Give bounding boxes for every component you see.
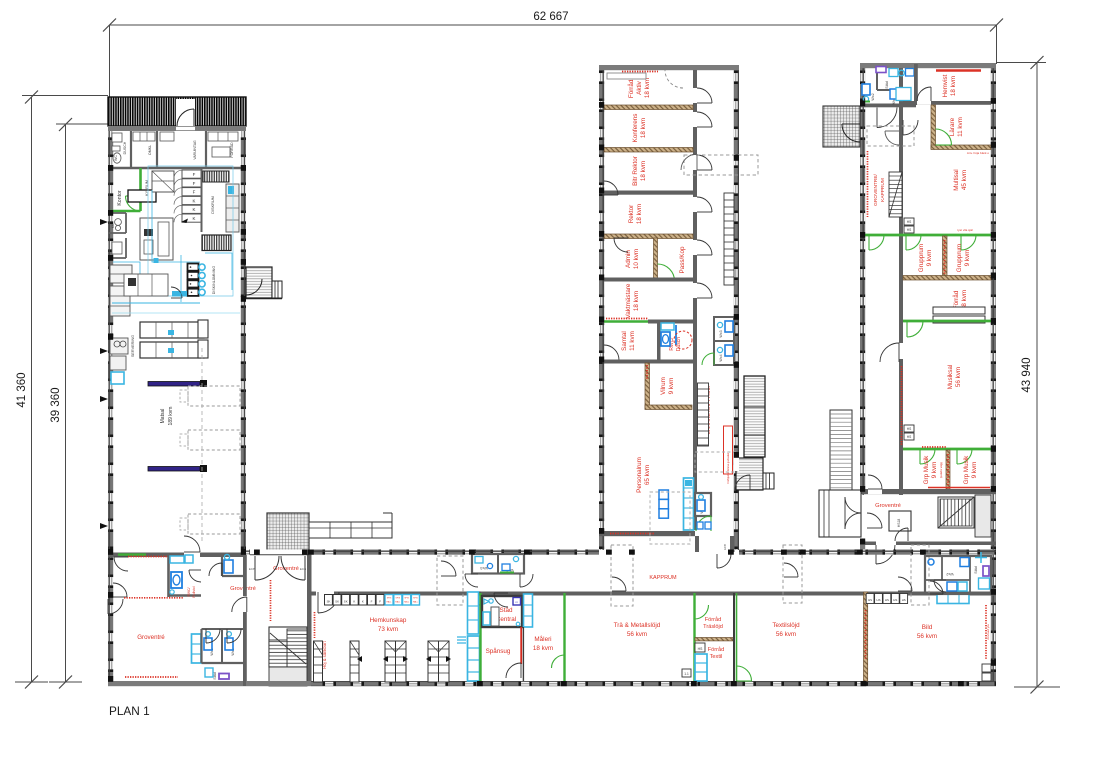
svg-text:Textil: Textil bbox=[710, 654, 723, 660]
svg-text:Grupprum: Grupprum bbox=[956, 244, 963, 272]
svg-text:Wc3: Wc3 bbox=[480, 566, 487, 570]
svg-text:Bild: Bild bbox=[922, 624, 933, 631]
svg-text:Förråd: Förråd bbox=[952, 290, 960, 309]
svg-text:KYLRUM: KYLRUM bbox=[145, 180, 149, 196]
svg-text:HALL: HALL bbox=[404, 601, 410, 604]
svg-text:F: F bbox=[193, 190, 196, 195]
svg-text:Grupprum: Grupprum bbox=[918, 244, 925, 272]
svg-text:Måleri: Måleri bbox=[534, 635, 551, 643]
svg-text:1.1: 1.1 bbox=[684, 672, 689, 676]
svg-text:PLAN 1: PLAN 1 bbox=[109, 704, 150, 718]
svg-text:189 kvm: 189 kvm bbox=[168, 407, 174, 426]
svg-text:9 kvm: 9 kvm bbox=[964, 250, 971, 267]
svg-text:Konferens: Konferens bbox=[632, 114, 639, 143]
svg-text:Vaktmästare: Vaktmästare bbox=[625, 283, 632, 318]
svg-text:Wc2: Wc2 bbox=[946, 572, 953, 576]
svg-text:18 kvm: 18 kvm bbox=[633, 291, 640, 311]
svg-text:39 360: 39 360 bbox=[50, 387, 62, 422]
svg-text:GROVENTRE/: GROVENTRE/ bbox=[873, 173, 879, 205]
svg-text:Aktiv: Aktiv bbox=[636, 80, 643, 94]
svg-text:Samtal: Samtal bbox=[621, 331, 628, 351]
svg-text:HS: HS bbox=[907, 220, 911, 224]
svg-text:KAPPRUM: KAPPRUM bbox=[649, 575, 677, 581]
svg-text:18 kvm: 18 kvm bbox=[950, 76, 957, 96]
svg-text:18 kvm: 18 kvm bbox=[636, 204, 643, 224]
svg-text:HS: HS bbox=[907, 427, 911, 431]
svg-text:OMKL: OMKL bbox=[148, 145, 152, 155]
svg-text:Wc4: Wc4 bbox=[719, 354, 723, 361]
svg-text:K: K bbox=[193, 198, 196, 203]
svg-text:SK: SK bbox=[344, 600, 348, 604]
svg-text:Lärare: Lärare bbox=[949, 117, 956, 136]
svg-text:F: F bbox=[193, 181, 196, 186]
svg-text:Groventré: Groventré bbox=[875, 503, 901, 509]
svg-text:Dusch: Dusch bbox=[676, 337, 682, 351]
svg-text:65 kvm: 65 kvm bbox=[644, 465, 651, 485]
svg-text:Hemvist: Hemvist bbox=[942, 74, 949, 97]
svg-text:F: F bbox=[193, 172, 196, 177]
svg-text:Admin: Admin bbox=[625, 250, 632, 268]
svg-text:HALL: HALL bbox=[395, 601, 401, 604]
svg-text:HS: HS bbox=[868, 598, 872, 602]
svg-text:41 360: 41 360 bbox=[16, 372, 28, 407]
svg-text:56 kvm: 56 kvm bbox=[955, 367, 962, 387]
svg-text:K: K bbox=[353, 600, 355, 604]
svg-text:18 kvm: 18 kvm bbox=[640, 118, 647, 138]
svg-text:Musiksal: Musiksal bbox=[947, 365, 954, 390]
svg-text:45 kvm: 45 kvm bbox=[961, 170, 968, 190]
svg-text:18 kvm: 18 kvm bbox=[640, 161, 647, 181]
svg-text:VARUINTAG: VARUINTAG bbox=[193, 140, 197, 160]
svg-text:HALL: HALL bbox=[386, 601, 392, 604]
svg-text:WC: WC bbox=[114, 155, 118, 161]
svg-text:18 kvm: 18 kvm bbox=[533, 645, 553, 652]
svg-text:Groventré: Groventré bbox=[137, 634, 165, 641]
svg-text:SPIS: SPIS bbox=[404, 598, 409, 600]
svg-text:9 kvm: 9 kvm bbox=[971, 462, 978, 479]
svg-text:SERVERING: SERVERING bbox=[131, 335, 135, 357]
svg-text:Spånsug: Spånsug bbox=[486, 647, 511, 655]
svg-text:Förråd/: Förråd/ bbox=[627, 78, 635, 99]
svg-text:HS: HS bbox=[698, 647, 703, 651]
svg-text:ECB: ECB bbox=[249, 567, 255, 571]
svg-text:DUSCH: DUSCH bbox=[123, 141, 127, 154]
svg-text:ECB: ECB bbox=[300, 567, 306, 571]
svg-text:43 940: 43 940 bbox=[1021, 357, 1033, 392]
svg-text:HS: HS bbox=[902, 598, 906, 602]
svg-text:Städ: Städ bbox=[885, 81, 889, 88]
svg-text:Pass/Kop: Pass/Kop bbox=[679, 246, 686, 273]
svg-text:Anv. höja bänk o: Anv. höja bänk o bbox=[967, 151, 989, 155]
svg-text:SPIS: SPIS bbox=[387, 598, 392, 600]
svg-text:10 kvm: 10 kvm bbox=[633, 249, 640, 269]
svg-text:ECB: ECB bbox=[723, 544, 727, 550]
svg-text:DISKRUM: DISKRUM bbox=[211, 196, 215, 214]
svg-text:K: K bbox=[193, 207, 196, 212]
svg-text:Hemkunskap: Hemkunskap bbox=[370, 617, 407, 624]
svg-text:HS: HS bbox=[876, 598, 880, 602]
svg-text:Wc2: Wc2 bbox=[871, 93, 875, 100]
svg-text:F: F bbox=[379, 600, 381, 604]
svg-text:9 kvm: 9 kvm bbox=[926, 250, 933, 267]
svg-text:Förbjuden lämna godsaker: Förbjuden lämna godsaker bbox=[726, 452, 730, 483]
svg-text:56 kvm: 56 kvm bbox=[776, 631, 796, 638]
svg-text:SPIS: SPIS bbox=[413, 598, 418, 600]
svg-text:SPIS: SPIS bbox=[396, 598, 401, 600]
svg-text:F: F bbox=[371, 600, 373, 604]
svg-text:73 kvm: 73 kvm bbox=[378, 626, 398, 633]
svg-text:11 kvm: 11 kvm bbox=[957, 117, 964, 137]
svg-text:Rektor: Rektor bbox=[628, 205, 635, 224]
svg-text:Trä & Metallslöjd: Trä & Metallslöjd bbox=[614, 622, 661, 629]
svg-text:Träslöjd: Träslöjd bbox=[703, 624, 723, 630]
svg-text:Grp Musik: Grp Musik bbox=[963, 455, 970, 485]
svg-text:Städ: Städ bbox=[974, 566, 978, 573]
svg-text:SK: SK bbox=[327, 600, 331, 604]
svg-text:Matsal: Matsal bbox=[160, 409, 166, 424]
svg-text:Grp Musik: Grp Musik bbox=[923, 455, 930, 485]
svg-text:K: K bbox=[362, 600, 364, 604]
svg-text:HS: HS bbox=[907, 228, 911, 232]
svg-text:K: K bbox=[193, 216, 196, 221]
svg-text:SK: SK bbox=[335, 600, 339, 604]
svg-text:HS: HS bbox=[893, 598, 897, 602]
svg-text:KAPPRUM: KAPPRUM bbox=[880, 178, 886, 202]
svg-text:Anvisad yta: Anvisad yta bbox=[986, 624, 990, 640]
svg-text:HALL: HALL bbox=[413, 601, 419, 604]
svg-text:9 kvm: 9 kvm bbox=[931, 462, 938, 479]
svg-text:Vilrum: Vilrum bbox=[660, 377, 667, 395]
svg-text:Förråd: Förråd bbox=[705, 616, 721, 623]
svg-text:56 kvm: 56 kvm bbox=[917, 633, 937, 640]
svg-text:DISKINLÄMNING: DISKINLÄMNING bbox=[212, 266, 216, 295]
svg-text:9 kvm: 9 kvm bbox=[668, 378, 675, 395]
svg-text:HS: HS bbox=[907, 435, 911, 439]
svg-text:Wc3: Wc3 bbox=[719, 330, 723, 337]
svg-text:56 kvm: 56 kvm bbox=[627, 631, 647, 638]
svg-text:KK: KK bbox=[111, 223, 115, 228]
svg-text:Multisal: Multisal bbox=[953, 169, 960, 190]
svg-text:Förråd: Förråd bbox=[708, 646, 724, 653]
svg-text:Textilslöjd: Textilslöjd bbox=[772, 622, 800, 629]
svg-text:18 kvm: 18 kvm bbox=[644, 78, 651, 98]
svg-text:HS: HS bbox=[885, 598, 889, 602]
svg-text:Bitr Rektor: Bitr Rektor bbox=[632, 156, 639, 186]
svg-text:HS18: HS18 bbox=[897, 519, 901, 528]
svg-text:tyst vila själ: tyst vila själ bbox=[957, 228, 973, 232]
svg-text:11 kvm: 11 kvm bbox=[629, 331, 636, 351]
svg-text:RWC/: RWC/ bbox=[187, 587, 191, 596]
svg-text:Rullstol: Rullstol bbox=[192, 586, 196, 597]
svg-text:ljudabs vägg: ljudabs vägg bbox=[939, 462, 943, 479]
svg-text:Kontor: Kontor bbox=[117, 190, 123, 206]
svg-text:Städ: Städ bbox=[500, 607, 513, 614]
svg-text:Personalrum: Personalrum bbox=[636, 457, 643, 493]
svg-text:62 667: 62 667 bbox=[533, 11, 568, 23]
